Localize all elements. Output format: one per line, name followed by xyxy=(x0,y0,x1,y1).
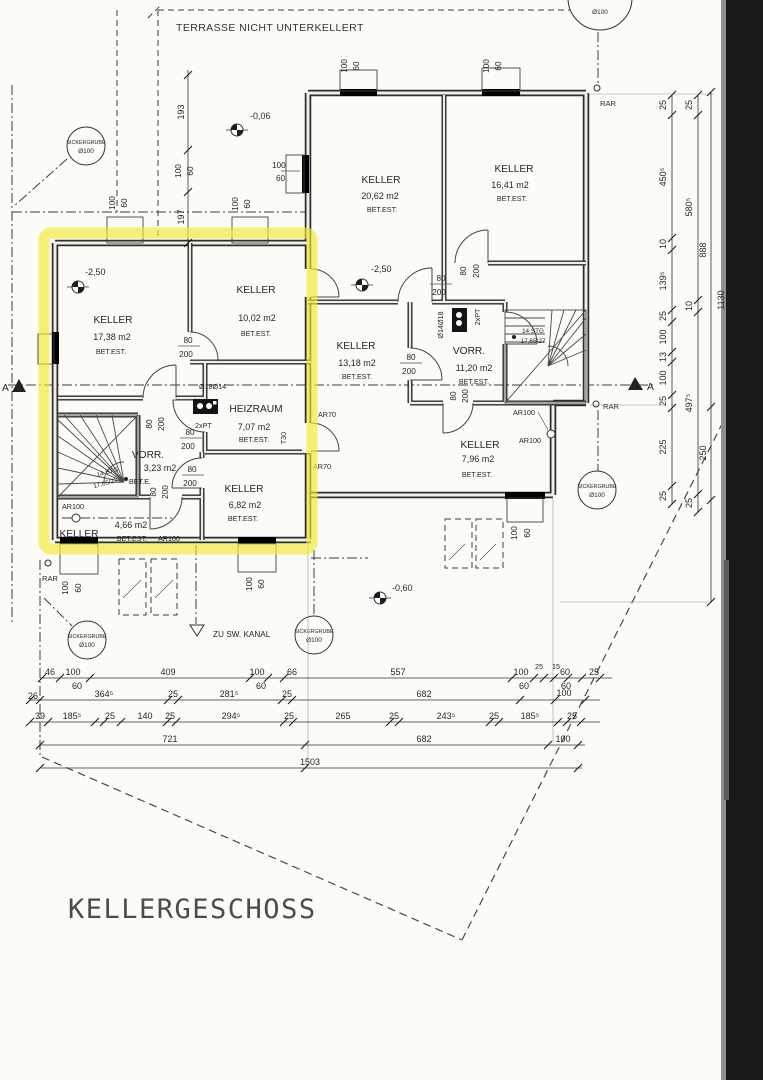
dim-value: 888 xyxy=(698,242,708,257)
dim-value: 100 xyxy=(658,329,668,344)
sickergrube-label: SICKERGRUBE xyxy=(294,629,334,635)
section-line-a-a: A A xyxy=(2,377,655,394)
sickergrube-label: SICKERGRUBE xyxy=(577,484,617,490)
room-floor: BET.EST. xyxy=(241,329,271,338)
pipe-dia-label: Ø18Ø14 xyxy=(199,382,226,391)
dim-value: 10 xyxy=(658,239,668,249)
stove-icon xyxy=(452,308,467,332)
room-floor: BET.EST. xyxy=(117,534,147,543)
room-area: 16,41 m2 xyxy=(491,180,529,190)
dim-chain-top: 193 100 60 197 xyxy=(174,70,195,247)
dim-value: 497⁵ xyxy=(684,393,694,412)
dim-value: 185⁵ xyxy=(63,711,82,721)
win-w: 100 xyxy=(482,59,491,73)
dim-value: 25 xyxy=(105,711,115,721)
dim-value: 25 xyxy=(489,711,499,721)
dim-value: 25 xyxy=(589,667,599,677)
dim-value: 193 xyxy=(176,104,186,119)
dim-value: 243⁵ xyxy=(437,711,456,721)
pt-label: 2xPT xyxy=(473,308,482,325)
win-h: 60 xyxy=(276,174,286,183)
dim-value: 25 xyxy=(165,711,175,721)
level-mid: -2,50 xyxy=(371,264,392,274)
floorplan-drawing: A A xyxy=(0,0,763,1080)
dim-value: 25 xyxy=(684,100,694,110)
win-h: 60 xyxy=(120,198,129,208)
room-area: 6,82 m2 xyxy=(229,500,262,510)
win-w: 100 xyxy=(272,161,286,170)
door-width: 80 xyxy=(149,487,158,497)
room-area: 10,02 m2 xyxy=(238,313,276,323)
dim-value: 409 xyxy=(160,667,175,677)
terrace-note: TERRASSE NICHT UNTERKELLERT xyxy=(176,22,364,34)
rar-label: RAR xyxy=(600,99,617,108)
dim-value: 557 xyxy=(390,667,405,677)
dim-value: 66 xyxy=(287,667,297,677)
dim-value: 39 xyxy=(35,711,45,721)
door-width: 80 xyxy=(459,266,468,276)
stair-ratio: 17,65/27 xyxy=(521,338,546,345)
scan-edge-band: 1130 xyxy=(716,0,763,1080)
dim-value: 250 xyxy=(698,445,708,460)
level-left: -2,50 xyxy=(85,267,106,277)
room-floor: BET.EST. xyxy=(462,470,492,479)
dim-value: 60 xyxy=(519,681,529,691)
sickergrube-label: SICKERGRUBE xyxy=(67,634,107,640)
dim-value: 225 xyxy=(658,439,668,454)
dim-value: 1130 xyxy=(716,290,726,309)
door-width: 80 xyxy=(145,419,154,429)
level-bottom: -0,60 xyxy=(392,583,413,593)
door-height: 200 xyxy=(179,350,193,359)
room-floor: BET.EST. xyxy=(459,377,489,386)
door-width: 80 xyxy=(436,274,446,283)
dim-value: 25 xyxy=(658,396,668,406)
room-floor: BET.EST. xyxy=(342,372,372,381)
win-h: 60 xyxy=(74,583,83,593)
door-width: 80 xyxy=(185,428,195,437)
dim-value: 26 xyxy=(28,691,38,701)
win-h: 60 xyxy=(494,61,503,71)
pipe-dia-label: Ø14Ø18 xyxy=(436,311,445,338)
win-w: 100 xyxy=(108,196,117,210)
t30-label: T30 xyxy=(279,432,288,444)
dim-value: 100 xyxy=(555,734,570,744)
win-w: 100 xyxy=(340,59,349,73)
door-width: 80 xyxy=(183,336,193,345)
room-area: 7,96 m2 xyxy=(462,454,495,464)
win-w: 100 xyxy=(61,581,70,595)
ar100-label: AR100 xyxy=(519,436,541,445)
dim-value: 100 xyxy=(174,164,183,178)
dim-value: 294⁵ xyxy=(222,711,241,721)
kanal-label: ZU SW. KANAL xyxy=(213,630,271,639)
room-name: KELLER xyxy=(361,175,400,186)
kanal-arrow: ZU SW. KANAL xyxy=(190,625,271,639)
scanned-floorplan-page: { "title": "KELLERGESCHOSS", "terrace": … xyxy=(0,0,763,1080)
stair-ratio: 17,65/27 xyxy=(93,477,119,490)
dim-value: 450⁵ xyxy=(658,167,668,186)
dim-value: 580⁵ xyxy=(684,197,694,216)
room-area: 13,18 m2 xyxy=(338,358,376,368)
room-labels: KELLER 20,62 m2 BET.EST. KELLER 16,41 m2… xyxy=(59,164,533,543)
room-name: VORR. xyxy=(132,450,164,461)
room-name: KELLER xyxy=(460,440,499,451)
dim-value: 197 xyxy=(176,209,186,224)
door-width: 80 xyxy=(449,391,458,401)
room-floor: BET.EST. xyxy=(239,435,269,444)
door-height: 200 xyxy=(183,479,197,488)
dim-value: 100 xyxy=(513,667,528,677)
dim-value: 265 xyxy=(335,711,350,721)
room-name: VORR. xyxy=(453,346,485,357)
door-width: 80 xyxy=(187,465,197,474)
ar100-label: AR100 xyxy=(513,408,535,417)
dim-value: 25 xyxy=(282,689,292,699)
door-height: 200 xyxy=(181,442,195,451)
dim-value: 139⁵ xyxy=(658,271,668,290)
dim-value: 25 xyxy=(658,311,668,321)
dim-value: 15 xyxy=(552,662,560,671)
room-floor: BET.EST. xyxy=(497,194,527,203)
rar-label: RAR xyxy=(42,574,59,583)
door-width: 80 xyxy=(406,353,416,362)
room-area: 7,07 m2 xyxy=(238,422,271,432)
dim-value: 140 xyxy=(137,711,152,721)
room-name: KELLER xyxy=(224,484,263,495)
room-area: 17,38 m2 xyxy=(93,332,131,342)
stair-steps: 14 STG xyxy=(522,328,544,335)
room-floor: BET.EST. xyxy=(228,514,258,523)
dim-value: 46 xyxy=(45,667,55,677)
sickergrube-label: SICKERGRUBE xyxy=(66,140,106,146)
walls xyxy=(55,93,586,540)
dim-value: 25 xyxy=(389,711,399,721)
room-area: 3,23 m2 xyxy=(144,463,177,473)
ar70-label: AR70 xyxy=(318,410,336,419)
dim-value: 25 xyxy=(284,711,294,721)
room-name: KELLER xyxy=(59,529,98,540)
win-h: 60 xyxy=(243,199,252,209)
section-marker-right xyxy=(628,377,643,390)
sickergrube-dia: Ø100 xyxy=(78,148,94,155)
dim-value: 25 xyxy=(168,689,178,699)
highlight-box xyxy=(44,233,312,549)
dim-value: 25 xyxy=(567,711,577,721)
dim-value: 281⁵ xyxy=(220,689,239,699)
pt-label: 2xPT xyxy=(195,421,212,430)
section-letter-right: A xyxy=(647,382,654,393)
dim-value: 364⁵ xyxy=(95,689,114,699)
win-h: 60 xyxy=(352,61,361,71)
ar100-label: AR100 xyxy=(62,502,84,511)
dim-value: 100 xyxy=(658,370,668,385)
dim-value: 682 xyxy=(416,734,431,744)
win-h: 60 xyxy=(523,528,532,538)
door-height: 200 xyxy=(157,417,166,431)
section-letter-left: A xyxy=(2,383,9,394)
room-floor: BET.EST. xyxy=(96,347,126,356)
door-height: 200 xyxy=(461,389,470,403)
room-name: KELLER xyxy=(494,164,533,175)
room-name: KELLER xyxy=(336,341,375,352)
dim-value: 100 xyxy=(556,688,571,698)
room-area: 11,20 m2 xyxy=(456,363,493,373)
level-top: -0,06 xyxy=(250,111,271,121)
win-w: 100 xyxy=(245,577,254,591)
sickergrube-dia: Ø100 xyxy=(589,492,605,499)
door-height: 200 xyxy=(472,264,481,278)
dim-value: 60 xyxy=(560,667,570,677)
ar100-label: AR100 xyxy=(158,534,180,543)
spiral-stair-right xyxy=(505,310,586,403)
room-floor: BET.EST. xyxy=(367,205,397,214)
sickergrube-dia: Ø100 xyxy=(79,642,95,649)
dim-value: 682 xyxy=(416,689,431,699)
dim-value: 25 xyxy=(535,662,543,671)
dim-value: 25 xyxy=(684,498,694,508)
plan-title: KELLERGESCHOSS xyxy=(68,894,317,925)
room-area: 20,62 m2 xyxy=(361,191,399,201)
room-name: KELLER xyxy=(93,315,132,326)
sickergrube-dia: Ø100 xyxy=(306,637,322,644)
room-area: 4,66 m2 xyxy=(115,520,148,530)
win-w: 100 xyxy=(510,526,519,540)
dim-value: 185⁵ xyxy=(521,711,540,721)
door-height: 200 xyxy=(432,288,446,297)
door-height: 200 xyxy=(402,367,416,376)
door-height: 200 xyxy=(161,485,170,499)
dim-value: 60 xyxy=(72,681,82,691)
dim-value: 25 xyxy=(658,100,668,110)
sickergrube-dia: Ø100 xyxy=(592,9,608,16)
dim-value: 10 xyxy=(684,301,694,311)
dim-value: 13 xyxy=(658,352,668,362)
win-h: 60 xyxy=(257,579,266,589)
room-floor: BET.E. xyxy=(129,477,151,486)
room-name: KELLER xyxy=(236,285,275,296)
dim-value: 721 xyxy=(162,734,177,744)
dim-value: 100 xyxy=(249,667,264,677)
room-name: HEIZRAUM xyxy=(229,404,282,415)
dim-value: 25 xyxy=(658,491,668,501)
win-w: 100 xyxy=(231,197,240,211)
dim-value: 1503 xyxy=(300,757,320,767)
rar-label: RAR xyxy=(603,402,620,411)
dim-value: 60 xyxy=(256,681,266,691)
dim-value: 60 xyxy=(186,166,195,176)
dim-value: 100 xyxy=(65,667,80,677)
